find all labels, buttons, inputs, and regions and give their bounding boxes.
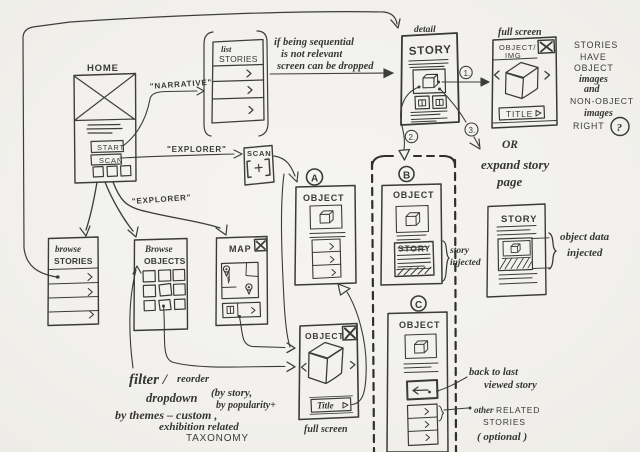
svg-text:page: page <box>496 174 523 189</box>
svg-text:story: story <box>449 246 470 256</box>
svg-text:RELATED: RELATED <box>496 405 540 415</box>
svg-text:STORY: STORY <box>409 44 453 58</box>
svg-text:SCAN: SCAN <box>99 156 123 165</box>
svg-text:and: and <box>584 84 601 95</box>
svg-text:1.: 1. <box>464 69 471 78</box>
svg-text:OR: OR <box>502 139 518 151</box>
svg-text:dropdown: dropdown <box>146 391 197 405</box>
svg-text:full screen: full screen <box>304 424 348 435</box>
svg-text:object data: object data <box>560 231 610 243</box>
svg-text:viewed story: viewed story <box>484 380 537 391</box>
svg-text:OBJECT: OBJECT <box>305 331 344 341</box>
svg-text:OBJECT: OBJECT <box>399 320 440 330</box>
svg-text:NON-OBJECT: NON-OBJECT <box>570 96 634 106</box>
svg-text:A: A <box>311 174 318 185</box>
svg-text:injected: injected <box>567 247 603 259</box>
svg-text:HOME: HOME <box>87 63 119 74</box>
svg-text:images: images <box>584 108 613 119</box>
svg-text:screen can be dropped: screen can be dropped <box>276 61 374 72</box>
svg-text:STORIES: STORIES <box>54 256 93 266</box>
svg-text:is not relevant: is not relevant <box>281 49 343 60</box>
svg-text:(by story,: (by story, <box>211 387 252 399</box>
svg-text:back to last: back to last <box>469 367 519 378</box>
svg-text:STORIES: STORIES <box>219 54 258 64</box>
svg-text:STORY: STORY <box>501 214 537 225</box>
svg-text:OBJECTS: OBJECTS <box>144 256 186 266</box>
svg-text:OBJECT: OBJECT <box>393 190 434 200</box>
svg-text:injected: injected <box>450 258 481 268</box>
svg-text:3.: 3. <box>469 126 476 135</box>
svg-text:C: C <box>415 300 422 311</box>
svg-text:browse: browse <box>55 244 81 254</box>
svg-text:OBJECT: OBJECT <box>574 63 614 73</box>
svg-text:other: other <box>474 405 494 415</box>
svg-text:reorder: reorder <box>177 374 210 385</box>
svg-text:RIGHT: RIGHT <box>573 121 604 131</box>
svg-text:SCAN: SCAN <box>247 149 271 158</box>
svg-text:full screen: full screen <box>498 27 542 38</box>
svg-text:STORY: STORY <box>398 244 431 254</box>
svg-text:by popularity+: by popularity+ <box>216 400 276 411</box>
svg-text:TAXONOMY: TAXONOMY <box>186 433 249 444</box>
svg-text:?: ? <box>617 122 623 134</box>
svg-text:by themes – custom ,: by themes – custom , <box>115 408 217 422</box>
svg-text:filter /: filter / <box>129 372 169 388</box>
svg-text:START: START <box>97 143 125 152</box>
svg-text:B: B <box>403 171 410 182</box>
svg-text:( optional ): ( optional ) <box>477 431 527 443</box>
svg-text:HAVE: HAVE <box>580 52 607 62</box>
svg-text:"EXPLORER": "EXPLORER" <box>167 145 227 154</box>
svg-text:STORIES: STORIES <box>483 417 526 427</box>
svg-text:STORIES: STORIES <box>574 40 618 50</box>
svg-text:expand story: expand story <box>481 157 549 172</box>
svg-text:TITLE: TITLE <box>506 109 533 119</box>
svg-text:if being sequential: if being sequential <box>274 37 354 48</box>
svg-text:2.: 2. <box>409 133 416 142</box>
svg-text:exhibition related: exhibition related <box>159 421 239 433</box>
svg-text:Browse: Browse <box>144 244 173 254</box>
svg-text:OBJECT: OBJECT <box>303 193 344 203</box>
svg-text:Title: Title <box>317 401 334 411</box>
svg-text:MAP: MAP <box>229 244 251 254</box>
svg-text:list: list <box>221 44 232 54</box>
